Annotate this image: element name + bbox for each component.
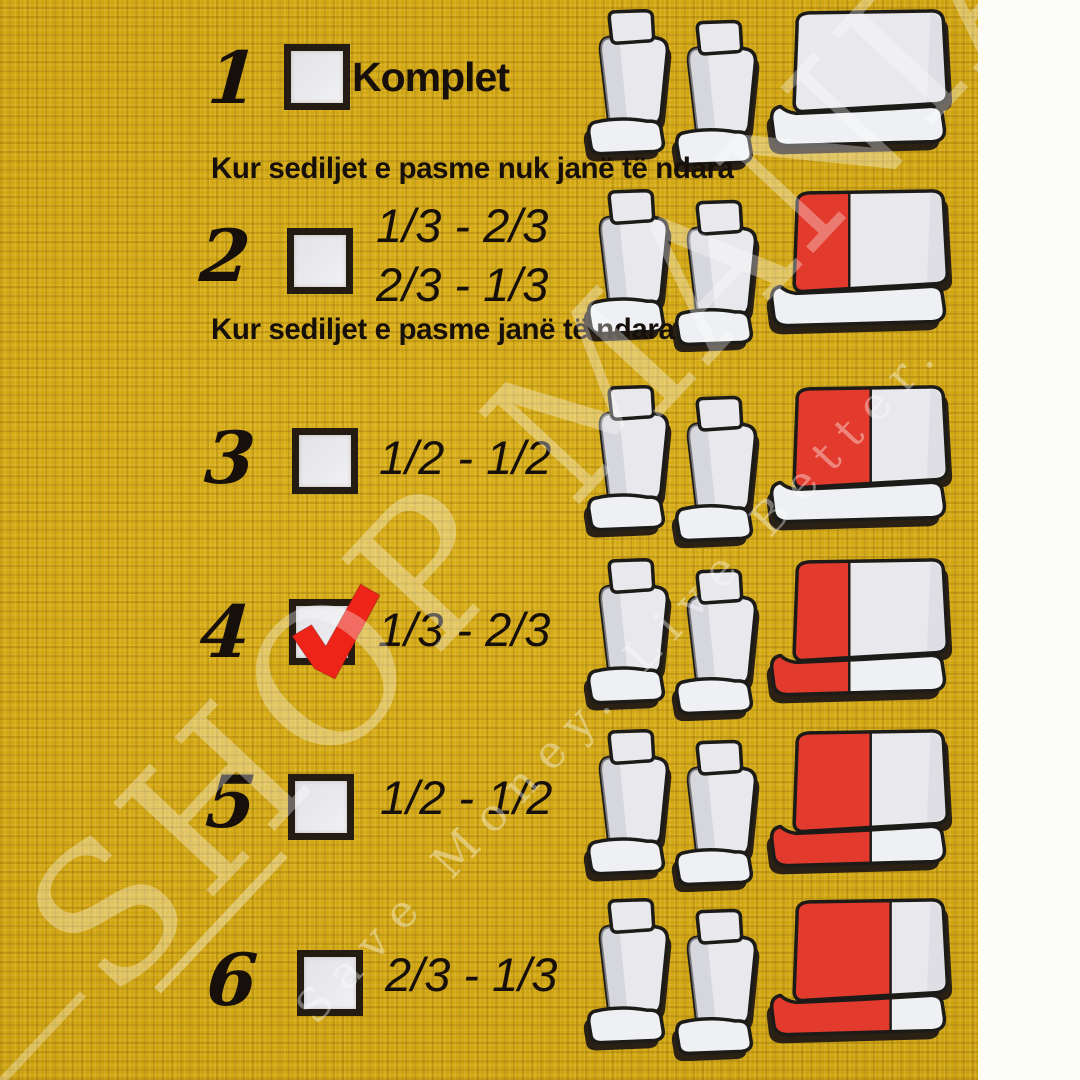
option-number-4: 4 [192, 596, 257, 668]
subtitle-divided: Kur sediljet e pasme janë të ndara [211, 313, 675, 347]
seat-diagram-row-5 [583, 724, 963, 884]
seat-diagram-row-3 [583, 380, 963, 540]
front-seats-icon [583, 380, 761, 548]
option-number-6: 6 [199, 944, 264, 1016]
option-checkbox-3[interactable] [292, 428, 358, 494]
watermark-underline-2 [0, 991, 86, 1080]
option-checkbox-2[interactable] [287, 228, 353, 294]
option-checkbox-4[interactable] [289, 599, 355, 665]
seat-diagram-row-4 [583, 553, 963, 713]
option-label-2b: 2/3 - 1/3 [376, 257, 548, 312]
front-seats-icon [583, 4, 761, 172]
checkmark-icon [284, 579, 386, 685]
photo-white-margin [978, 0, 1080, 1080]
yellow-fabric-background: 1 Komplet Kur sediljet e pasme nuk janë … [0, 0, 978, 1080]
option-label-4: 1/3 - 2/3 [378, 602, 550, 657]
seat-diagram-row-1 [583, 4, 963, 164]
rear-bench-icon [764, 9, 956, 165]
rear-bench-icon [764, 385, 956, 541]
option-checkbox-5[interactable] [288, 774, 354, 840]
rear-bench-icon [764, 898, 956, 1054]
front-seats-icon [583, 893, 761, 1061]
product-photo: 1 Komplet Kur sediljet e pasme nuk janë … [0, 0, 1080, 1080]
option-label-5: 1/2 - 1/2 [380, 770, 552, 825]
option-label-2a: 1/3 - 2/3 [376, 198, 548, 253]
option-number-2: 2 [192, 220, 257, 292]
subtitle-not-divided: Kur sediljet e pasme nuk janë të ndara [211, 152, 734, 186]
option-number-5: 5 [198, 766, 263, 838]
rear-bench-icon [764, 729, 956, 885]
option-checkbox-6[interactable] [297, 950, 363, 1016]
rear-bench-icon [764, 189, 956, 345]
option-label-komplet: Komplet [352, 54, 509, 101]
rear-bench-icon [764, 558, 956, 714]
option-label-6: 2/3 - 1/3 [385, 947, 557, 1002]
front-seats-icon [583, 724, 761, 892]
front-seats-icon [583, 553, 761, 721]
option-number-3: 3 [197, 422, 262, 494]
option-checkbox-1[interactable] [284, 44, 350, 110]
seat-diagram-row-6 [583, 893, 963, 1053]
option-number-1: 1 [200, 42, 265, 114]
option-label-3: 1/2 - 1/2 [379, 430, 551, 485]
